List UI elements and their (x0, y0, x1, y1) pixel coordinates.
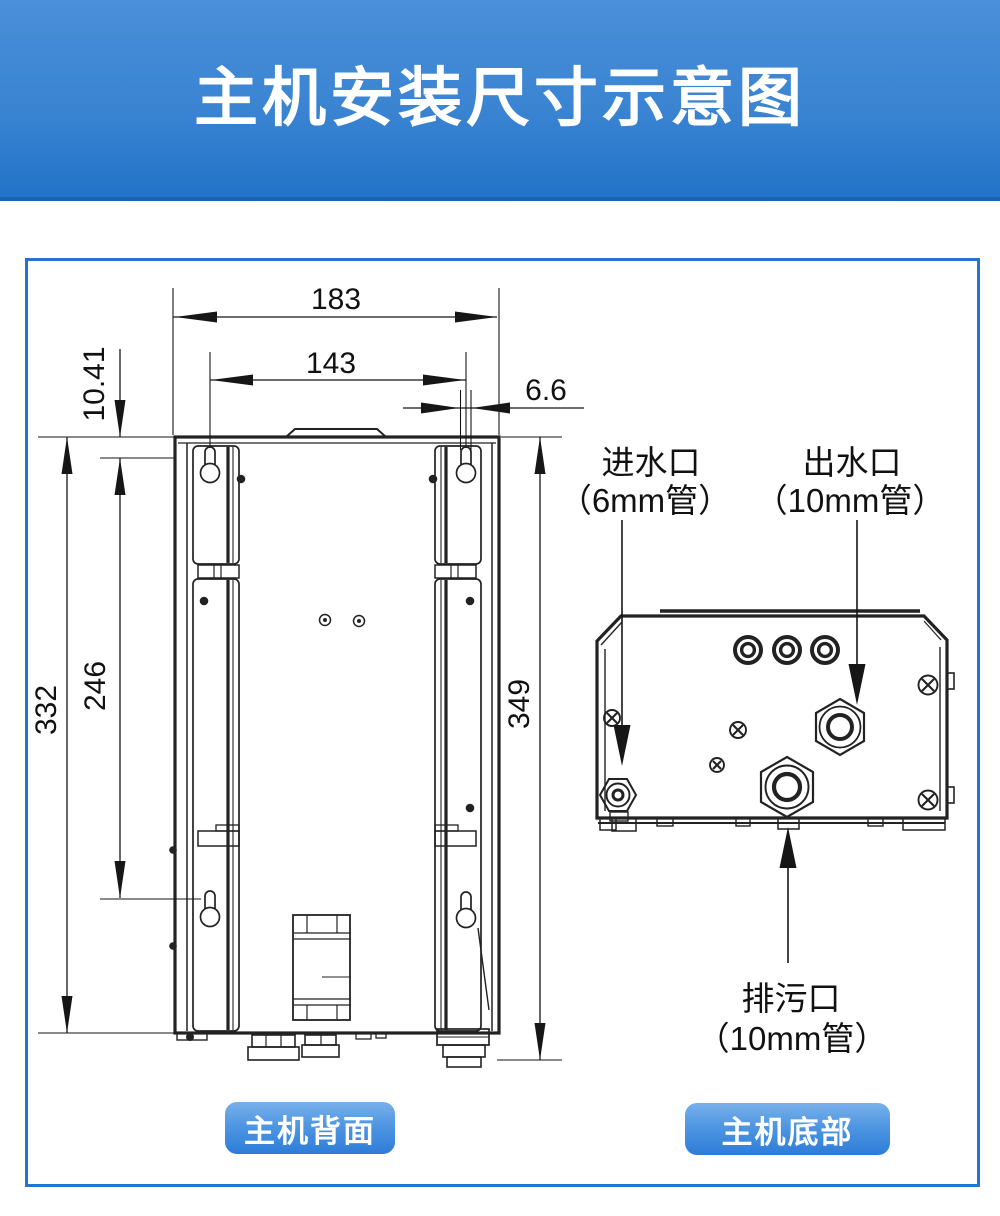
caption-bottom-view-label: 主机底部 (722, 1107, 854, 1152)
drain-pipe-label: （10mm管） (697, 1020, 888, 1057)
dim-hole-top-offset: 10.41 (78, 346, 111, 421)
outlet-label: 出水口 (803, 444, 902, 481)
inlet-label: 进水口 (602, 444, 701, 481)
page-title: 主机安装尺寸示意图 (0, 0, 1000, 197)
dim-outer-width: 183 (311, 283, 361, 316)
dim-slot-offset: 6.6 (525, 374, 567, 407)
dim-body-height: 332 (30, 685, 63, 735)
header-banner: 主机安装尺寸示意图 (0, 0, 1000, 201)
dim-hole-span-height: 246 (79, 661, 112, 711)
inlet-pipe-label: （6mm管） (559, 482, 731, 519)
bottom-view-drawing (597, 611, 954, 831)
drain-arrow (780, 827, 797, 868)
dim-overall-height: 349 (503, 679, 536, 729)
caption-back-view: 主机背面 (225, 1102, 395, 1154)
dim-hole-span-width: 143 (306, 347, 356, 380)
installation-diagram: 183 143 6.6 10.41 332 246 349 (25, 258, 980, 1187)
drain-label: 排污口 (742, 980, 841, 1017)
caption-back-view-label: 主机背面 (244, 1106, 376, 1151)
back-view-drawing (169, 429, 499, 1067)
outlet-pipe-label: （10mm管） (755, 482, 946, 519)
product-dimension-infographic: 主机安装尺寸示意图 (0, 0, 1000, 1216)
caption-bottom-view: 主机底部 (685, 1103, 890, 1155)
